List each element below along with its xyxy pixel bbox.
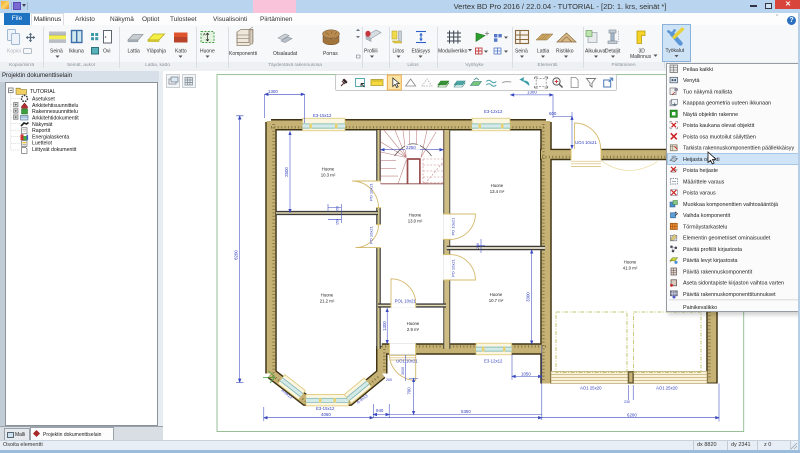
svg-text:POL 10x21: POL 10x21 — [395, 299, 417, 304]
svg-text:Ristikko: Ristikko — [556, 49, 574, 55]
svg-text:Määrittele varaus: Määrittele varaus — [683, 179, 725, 185]
svg-text:Mallinnus: Mallinnus — [630, 54, 652, 60]
svg-text:Profiili: Profiili — [364, 49, 378, 55]
svg-text:Päivitä levyt kirjastosta: Päivitä levyt kirjastosta — [683, 258, 738, 264]
svg-text:Katto: Katto — [175, 49, 187, 55]
svg-text:Huone: Huone — [624, 260, 637, 265]
svg-text:Kopioi: Kopioi — [7, 49, 21, 55]
svg-text:Seinä: Seinä — [515, 49, 528, 55]
svg-text:4060: 4060 — [321, 412, 331, 417]
svg-text:21.2 m²: 21.2 m² — [320, 299, 335, 304]
svg-text:Muokkaa komponenttien vaihtosä: Muokkaa komponenttien vaihtosääntöjä — [683, 202, 778, 208]
svg-text:Ikkuna: Ikkuna — [69, 49, 84, 55]
svg-text:Liittyvät dokumentit: Liittyvät dokumentit — [32, 147, 77, 153]
svg-text:Rakennesuunnittelu: Rakennesuunnittelu — [32, 109, 78, 115]
svg-text:Huone: Huone — [321, 293, 334, 298]
svg-text:Näytä objektin rakenne: Näytä objektin rakenne — [683, 112, 738, 118]
svg-text:Huone: Huone — [490, 292, 503, 297]
svg-text:Poista varaus: Poista varaus — [683, 191, 716, 197]
svg-text:940: 940 — [376, 408, 384, 413]
svg-text:E3-15x12: E3-15x12 — [316, 406, 335, 411]
svg-text:Huone: Huone — [322, 167, 335, 172]
svg-text:Päivitä profiilit kirjastosta: Päivitä profiilit kirjastosta — [683, 247, 742, 253]
svg-text:Otsalaudat: Otsalaudat — [273, 51, 298, 57]
svg-text:600: 600 — [549, 111, 557, 116]
svg-text:2.9 m²: 2.9 m² — [407, 327, 420, 332]
svg-text:A-9x13: A-9x13 — [356, 393, 370, 405]
svg-text:41.0 m²: 41.0 m² — [623, 266, 638, 271]
svg-text:UO1 10x21: UO1 10x21 — [396, 358, 418, 363]
svg-text:Huone: Huone — [407, 321, 420, 326]
svg-text:AO1 25x20: AO1 25x20 — [656, 385, 678, 390]
svg-text:UO4 10x21: UO4 10x21 — [575, 140, 597, 145]
svg-text:13.4 m²: 13.4 m² — [490, 189, 505, 194]
svg-text:2500: 2500 — [284, 167, 289, 177]
svg-text:PO 10x21: PO 10x21 — [369, 182, 374, 201]
svg-text:5350: 5350 — [461, 409, 471, 414]
svg-text:Poista heijaste: Poista heijaste — [683, 168, 718, 174]
svg-text:Törmäystarkastelu: Törmäystarkastelu — [683, 224, 727, 230]
svg-text:Porras: Porras — [323, 51, 338, 57]
svg-text:Huone: Huone — [200, 49, 215, 55]
svg-text:8200: 8200 — [234, 250, 239, 260]
svg-text:Painikevalikko: Painikevalikko — [683, 305, 717, 311]
svg-text:Energialaskenta: Energialaskenta — [32, 134, 69, 140]
svg-text:Näkymät: Näkymät — [32, 122, 53, 128]
svg-text:Vaihda komponentit: Vaihda komponentit — [683, 213, 731, 219]
svg-text:10.7 m²: 10.7 m² — [489, 298, 504, 303]
svg-text:Tarkista rakennuskomponenttien: Tarkista rakennuskomponenttien päällekkä… — [683, 146, 794, 152]
svg-text:Luettelot: Luettelot — [32, 141, 52, 147]
svg-text:Detaljit: Detaljit — [605, 49, 621, 55]
svg-text:Venytä: Venytä — [683, 78, 700, 84]
svg-text:AO1 25x20: AO1 25x20 — [580, 386, 602, 391]
svg-text:Asetukset: Asetukset — [32, 97, 55, 103]
svg-text:PO 10x21: PO 10x21 — [451, 217, 456, 236]
svg-text:Työkalut: Työkalut — [666, 48, 685, 54]
svg-text:A: A — [203, 32, 206, 37]
svg-text:6200: 6200 — [627, 412, 637, 417]
svg-text:Etäisyys: Etäisyys — [412, 49, 431, 55]
svg-text:Huone: Huone — [409, 213, 422, 218]
svg-text:Elementin geometriset ominaisu: Elementin geometriset ominaisuudet — [683, 236, 771, 242]
svg-text:3300: 3300 — [526, 292, 531, 302]
svg-text:Kaappaa geometria uuteen ikkun: Kaappaa geometria uuteen ikkunaan — [683, 101, 771, 107]
svg-text:3030: 3030 — [401, 367, 405, 375]
svg-text:A-9x13: A-9x13 — [280, 388, 294, 400]
svg-text:Raportit: Raportit — [32, 128, 51, 134]
svg-text:PO 10x21: PO 10x21 — [369, 225, 374, 244]
svg-text:Peilaa kaikki: Peilaa kaikki — [683, 67, 713, 73]
svg-text:Lattia: Lattia — [537, 49, 549, 55]
svg-text:1300: 1300 — [268, 89, 278, 94]
svg-text:1300: 1300 — [382, 321, 387, 331]
svg-text:E3-15x12: E3-15x12 — [313, 113, 332, 118]
svg-text:Lattia: Lattia — [128, 49, 140, 55]
svg-text:Päivitä rakennuskomponentit: Päivitä rakennuskomponentit — [683, 269, 753, 275]
svg-text:TUTORIAL: TUTORIAL — [30, 89, 56, 95]
svg-text:Aseta sidontapiste kirjaston v: Aseta sidontapiste kirjaston vaihtoa var… — [683, 281, 784, 287]
svg-text:Moduliverkko: Moduliverkko — [438, 49, 468, 55]
svg-text:Alkukuvat: Alkukuvat — [585, 49, 607, 55]
svg-text:230: 230 — [624, 400, 630, 404]
svg-text:E3-12x12: E3-12x12 — [484, 109, 503, 114]
svg-text:1050: 1050 — [521, 371, 531, 376]
svg-text:150: 150 — [336, 219, 340, 225]
svg-text:Poista osa muotoilut säilyttäe: Poista osa muotoilut säilyttäen — [683, 134, 756, 140]
svg-text:PO 10x21: PO 10x21 — [451, 258, 456, 277]
svg-text:Ovi: Ovi — [103, 49, 111, 55]
svg-text:250: 250 — [476, 243, 480, 249]
svg-text:450: 450 — [336, 206, 340, 212]
svg-text:Tuo näkymä mallista: Tuo näkymä mallista — [683, 89, 732, 95]
svg-text:Poista kaukana olevat objektit: Poista kaukana olevat objektit — [683, 123, 755, 129]
svg-text:2250: 2250 — [406, 145, 416, 150]
svg-text:Komponentti: Komponentti — [229, 51, 257, 57]
svg-text:10.3 m²: 10.3 m² — [321, 173, 336, 178]
svg-text:Yläpohja: Yläpohja — [147, 49, 167, 55]
svg-text:700: 700 — [407, 387, 412, 395]
svg-text:13.0 m²: 13.0 m² — [408, 219, 423, 224]
svg-text:E3-12x12: E3-12x12 — [484, 358, 503, 363]
svg-text:Liitos: Liitos — [393, 49, 405, 55]
svg-text:200: 200 — [386, 378, 392, 382]
svg-text:Seinä: Seinä — [50, 49, 63, 55]
svg-text:Arkkitehtisuunnittelu: Arkkitehtisuunnittelu — [32, 103, 79, 109]
svg-text:Päivitä rakennuskomponenttitun: Päivitä rakennuskomponenttitunnukset — [683, 292, 776, 298]
svg-text:Arkkitehtidokumentit: Arkkitehtidokumentit — [32, 116, 79, 122]
svg-text:Huone: Huone — [491, 183, 504, 188]
